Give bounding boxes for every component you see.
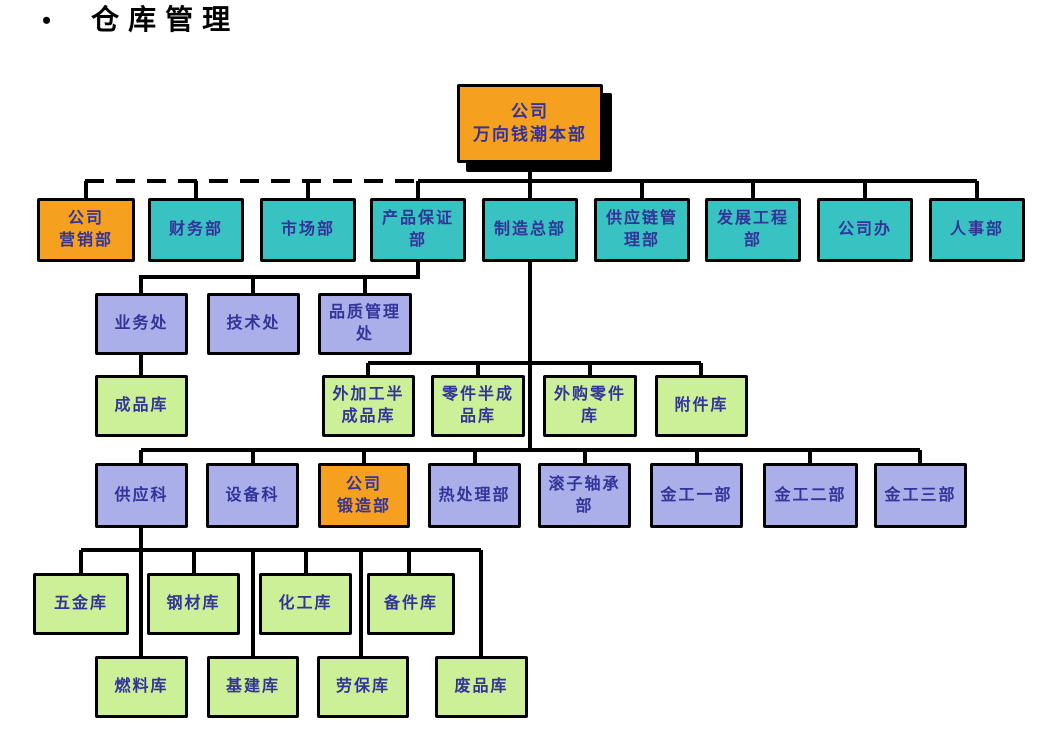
node-feipinku: 废品库 <box>435 656 528 718</box>
node-ranliaoku: 燃料库 <box>95 656 188 718</box>
node-chanpin-baozhengbu: 产品保证 部 <box>370 198 466 262</box>
node-pinzhi-guanlichu: 品质管理 处 <box>318 293 412 355</box>
node-gongyinglian-guanlibu: 供应链管 理部 <box>594 198 690 262</box>
node-gunzi-zhouchengbu: 滚子轴承 部 <box>538 463 631 528</box>
node-gongsi-yingxiaobu: 公司 营销部 <box>37 198 135 262</box>
node-fujianku: 附件库 <box>655 375 748 437</box>
node-rechulibu: 热处理部 <box>428 463 521 528</box>
node-wujinku: 五金库 <box>33 573 129 635</box>
node-huagongku: 化工库 <box>259 573 352 635</box>
node-shebeike: 设备科 <box>206 463 299 528</box>
node-jingong-erbu: 金工二部 <box>763 463 858 528</box>
org-chart-slide: • 仓库管理 公司 万向钱潮本部公司 营销部财务部市场部产品保证 部制造总部供应… <box>0 0 1052 744</box>
node-yewuchu: 业务处 <box>95 293 188 355</box>
node-gongsi-duanzaobu: 公司 锻造部 <box>318 463 410 528</box>
node-chengpinku: 成品库 <box>95 375 188 437</box>
node-waigou-lingjianku: 外购零件 库 <box>543 375 637 437</box>
node-gangcaiku: 钢材库 <box>147 573 240 635</box>
node-renshibu: 人事部 <box>929 198 1025 262</box>
node-zhizao-zongbu: 制造总部 <box>482 198 578 262</box>
node-fazhan-gongchengbu: 发展工程 部 <box>705 198 801 262</box>
node-jishuchu: 技术处 <box>207 293 300 355</box>
node-beijianku: 备件库 <box>367 573 455 635</box>
node-jingong-yibu: 金工一部 <box>650 463 743 528</box>
node-waijiagong-banchengpinku: 外加工半 成品库 <box>322 375 415 437</box>
node-jingong-sanbu: 金工三部 <box>874 463 967 528</box>
node-gongyingke: 供应科 <box>95 463 188 528</box>
connector-line <box>141 262 418 293</box>
node-caiwubu: 财务部 <box>148 198 244 262</box>
node-gongsiban: 公司办 <box>817 198 913 262</box>
node-shichangbu: 市场部 <box>260 198 356 262</box>
node-root: 公司 万向钱潮本部 <box>457 84 603 163</box>
node-laobaoku: 劳保库 <box>317 656 409 718</box>
node-lingjian-banchengpinku: 零件半成 品库 <box>431 375 525 437</box>
node-jijianku: 基建库 <box>207 656 299 718</box>
